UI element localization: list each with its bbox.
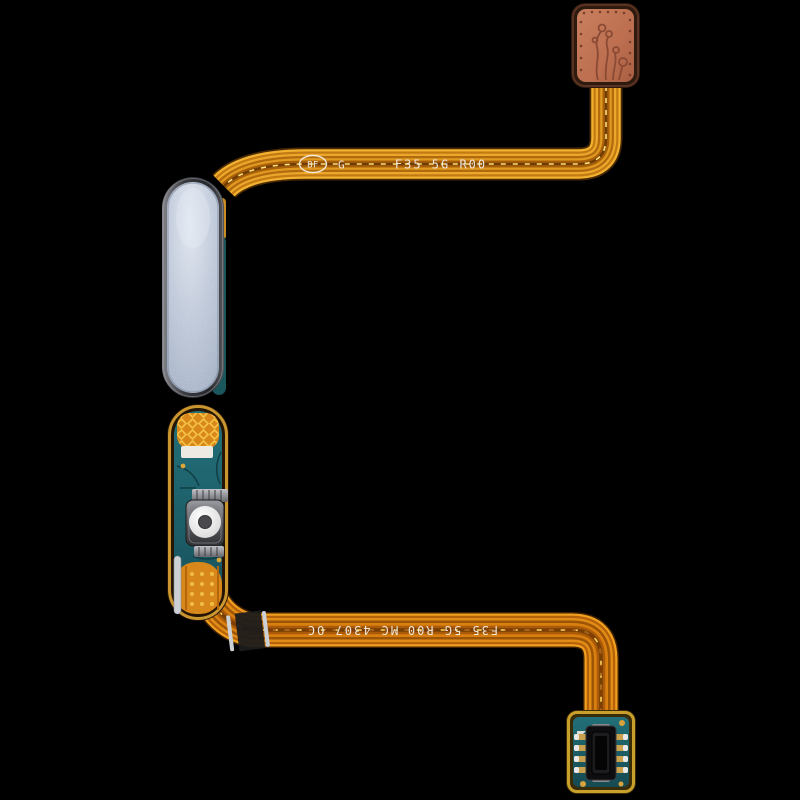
gold-via-dot — [217, 558, 222, 563]
bottom-batch-text: MC 4307 OC — [306, 623, 398, 637]
gold-via-dot — [181, 464, 186, 469]
flex-cable-scene: BF G F35 5G R00 — [0, 0, 800, 800]
copper-contact-pad — [571, 3, 640, 88]
sensor-board-with-dome-switch — [167, 404, 229, 621]
board-to-board-connector-pcb — [566, 710, 636, 794]
blue-side-button-cap — [160, 175, 230, 403]
button-highlight — [176, 188, 210, 248]
btb-connector — [586, 724, 616, 782]
solder-strip — [174, 556, 181, 614]
bottom-model-text: F35 5G R00 — [406, 623, 498, 637]
top-model-text: F35 5G R00 — [395, 158, 487, 172]
product-photo: BF G F35 5G R00 — [0, 0, 800, 800]
grade-mark-text: G — [338, 159, 346, 172]
black-background — [0, 0, 800, 800]
flex-diamond-window — [177, 413, 219, 449]
gold-fiducial-dot — [580, 781, 586, 787]
switch-actuator — [199, 516, 212, 529]
gold-fiducial-dot — [619, 782, 624, 787]
gold-fiducial-dot — [619, 720, 625, 726]
black-stiffener — [235, 610, 265, 651]
bf-mark-text: BF — [307, 161, 319, 171]
white-label-sticker — [181, 446, 213, 458]
